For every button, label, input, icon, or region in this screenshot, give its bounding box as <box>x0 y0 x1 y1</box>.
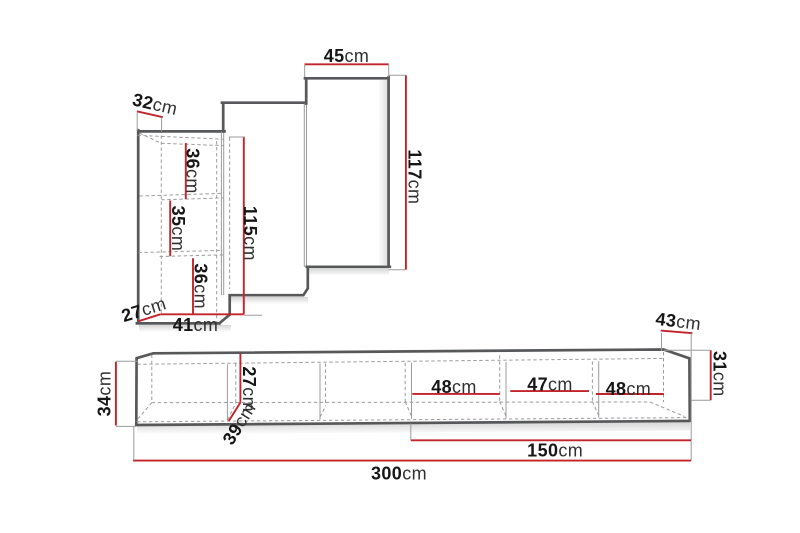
svg-text:117cm: 117cm <box>405 149 425 204</box>
svg-text:31cm: 31cm <box>710 351 730 397</box>
svg-text:36cm: 36cm <box>183 148 203 194</box>
svg-text:48cm: 48cm <box>606 379 652 399</box>
svg-text:48cm: 48cm <box>431 377 477 397</box>
svg-text:27cm: 27cm <box>239 366 259 412</box>
svg-text:45cm: 45cm <box>324 46 370 66</box>
svg-text:36cm: 36cm <box>191 263 211 309</box>
svg-text:47cm: 47cm <box>527 374 573 394</box>
svg-text:35cm: 35cm <box>168 206 188 252</box>
svg-text:41cm: 41cm <box>173 315 219 335</box>
svg-text:115cm: 115cm <box>240 206 260 261</box>
svg-text:300cm: 300cm <box>371 464 427 484</box>
svg-text:34cm: 34cm <box>95 371 115 417</box>
svg-text:150cm: 150cm <box>527 441 583 461</box>
